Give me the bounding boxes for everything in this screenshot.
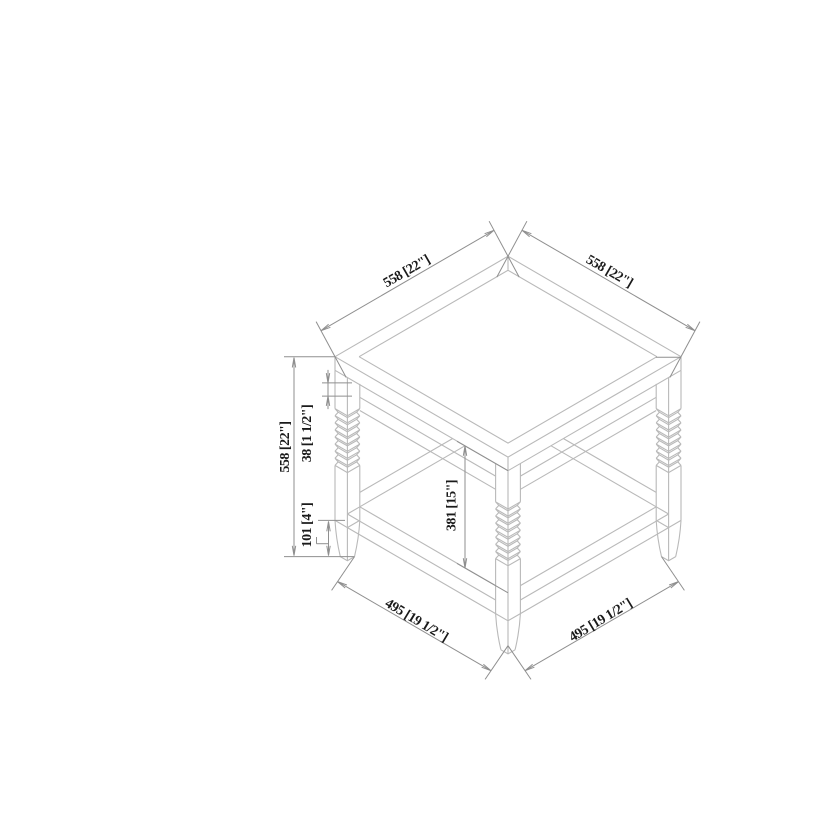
- svg-text:381 [15"]: 381 [15"]: [445, 480, 460, 531]
- svg-text:558 [22"]: 558 [22"]: [278, 421, 293, 472]
- svg-text:38 [1 1/2"]: 38 [1 1/2"]: [300, 405, 315, 463]
- svg-text:101 [4"]: 101 [4"]: [300, 503, 315, 548]
